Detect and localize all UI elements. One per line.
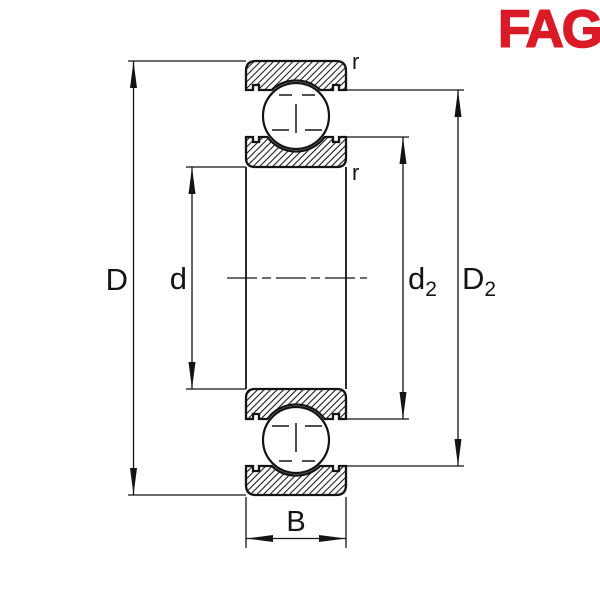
chamfer-label-r-inner: r [352,160,359,185]
bearing-cross-section-drawing: D d d2 D2 B r r FAG [0,0,600,600]
dimension-d2: d2 [346,137,437,419]
dim-label-d2: d2 [408,261,437,301]
dim-label-d: d [170,261,187,296]
bearing-body [227,61,367,495]
fag-logo: FAG [498,0,600,59]
dimension-B: B [246,497,346,548]
dim-label-D: D [106,262,128,297]
chamfer-label-r-top: r [352,49,359,74]
dim-label-D2: D2 [462,261,496,301]
bearing-drawing-page: D d d2 D2 B r r FAG [0,0,600,600]
dim-label-B: B [286,506,305,538]
